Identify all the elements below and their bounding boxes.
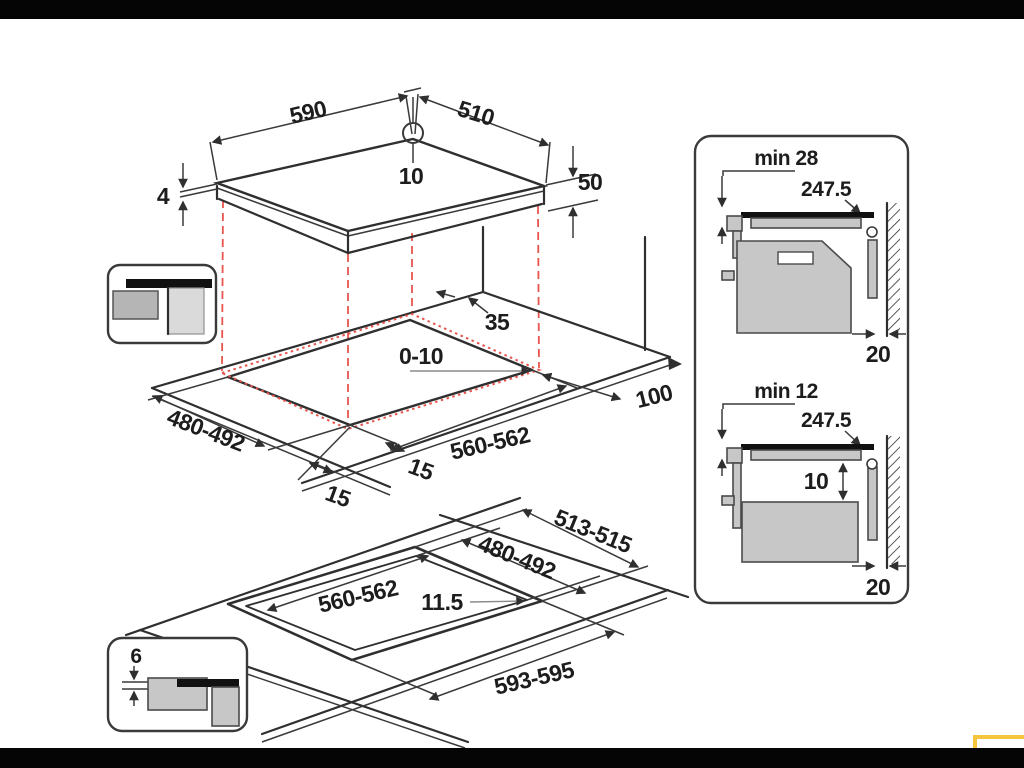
dim-15-right-label: 15 — [405, 453, 438, 486]
bottom-black-bar — [0, 748, 1024, 768]
dim-513-515-label: 513-515 — [551, 504, 636, 559]
cable-grommet-top — [867, 227, 877, 237]
hob-glass-section-top — [741, 212, 874, 218]
hob-isometric-view: 590 510 4 50 10 — [157, 88, 602, 427]
dim-side-gap: 0-10 — [399, 343, 529, 371]
cable-247-5-bottom-label: 247.5 — [801, 409, 852, 432]
dim-593-595-label: 593-595 — [492, 656, 577, 700]
inset-worktop-surface — [126, 279, 212, 288]
dim-100-label: 100 — [633, 379, 675, 413]
rear-spacer-bottom — [868, 467, 877, 540]
dim-glass-thickness: 4 — [157, 163, 217, 226]
hob-glass-section-bottom — [741, 444, 874, 450]
wall-gap-20-top-label: 20 — [866, 341, 891, 367]
panel-pointer-arrow — [668, 357, 682, 370]
dim-flush-480-492-label: 480-492 — [475, 530, 560, 584]
dim-rebate-width: 593-595 — [352, 601, 624, 700]
hob-body-section-bottom — [751, 450, 861, 460]
oven-vent-slot — [778, 252, 813, 264]
cable-247-5-top-label: 247.5 — [801, 178, 852, 201]
dim-590-label: 590 — [287, 95, 329, 129]
flush-install-inset: 6 — [108, 638, 247, 731]
dim-flush-cutout-width: 560-562 — [268, 556, 428, 618]
min-28-label: min 28 — [754, 147, 818, 170]
min-12-label: min 12 — [754, 380, 818, 403]
left-bracket-bottom — [727, 448, 742, 463]
rear-spacer-top — [868, 240, 877, 298]
dim-cutout-depth: 480-492 — [148, 377, 350, 457]
dim-4-label: 4 — [157, 183, 170, 209]
wall-hatch-bottom — [888, 436, 900, 564]
dim-50-label: 50 — [578, 169, 603, 195]
top-black-bar — [0, 0, 1024, 19]
inset-cabinet — [168, 288, 204, 334]
dim-510-label: 510 — [455, 95, 498, 131]
left-bracket-top — [727, 216, 742, 231]
dim-11-5-label: 11.5 — [421, 589, 463, 615]
dim-flush-560-562-label: 560-562 — [316, 574, 401, 618]
dim-0-10-label: 0-10 — [399, 343, 443, 369]
hob-glass-top — [217, 139, 544, 231]
cable-grommet-bottom — [867, 459, 877, 469]
wall-gap-20-bottom-label: 20 — [866, 574, 891, 600]
drawer-side-pin — [722, 496, 734, 505]
dim-10-label: 10 — [399, 163, 424, 189]
flush-rebate-outer — [228, 547, 542, 660]
installation-diagram-page: 590 510 4 50 10 — [0, 0, 1024, 768]
drawer-gap-10-label: 10 — [804, 468, 829, 494]
diagram-canvas: 590 510 4 50 10 — [0, 0, 1024, 768]
wall-hatch-top — [888, 203, 900, 332]
hob-body-section-top — [751, 218, 861, 228]
dim-35-label: 35 — [485, 309, 510, 335]
worktop-cutout-opening — [228, 320, 532, 425]
side-clearance-panel: min 28 247.5 20 min 12 — [668, 136, 908, 603]
overlay-install-inset — [108, 265, 216, 343]
dim-15-left-label: 15 — [322, 480, 355, 513]
inset-flush-worktop-surface — [177, 679, 239, 687]
drawer-body — [742, 502, 858, 562]
inset-flush-cabinet — [212, 687, 239, 726]
dim-front-distances: 15 15 — [310, 443, 438, 513]
oven-side-pin — [722, 271, 734, 280]
worktop-cutout-view: 35 0-10 480-492 560-562 15 15 — [148, 227, 675, 513]
inset-hob-body — [113, 291, 158, 319]
dim-6-label: 6 — [130, 645, 141, 668]
dim-body-height: 50 — [546, 146, 602, 238]
